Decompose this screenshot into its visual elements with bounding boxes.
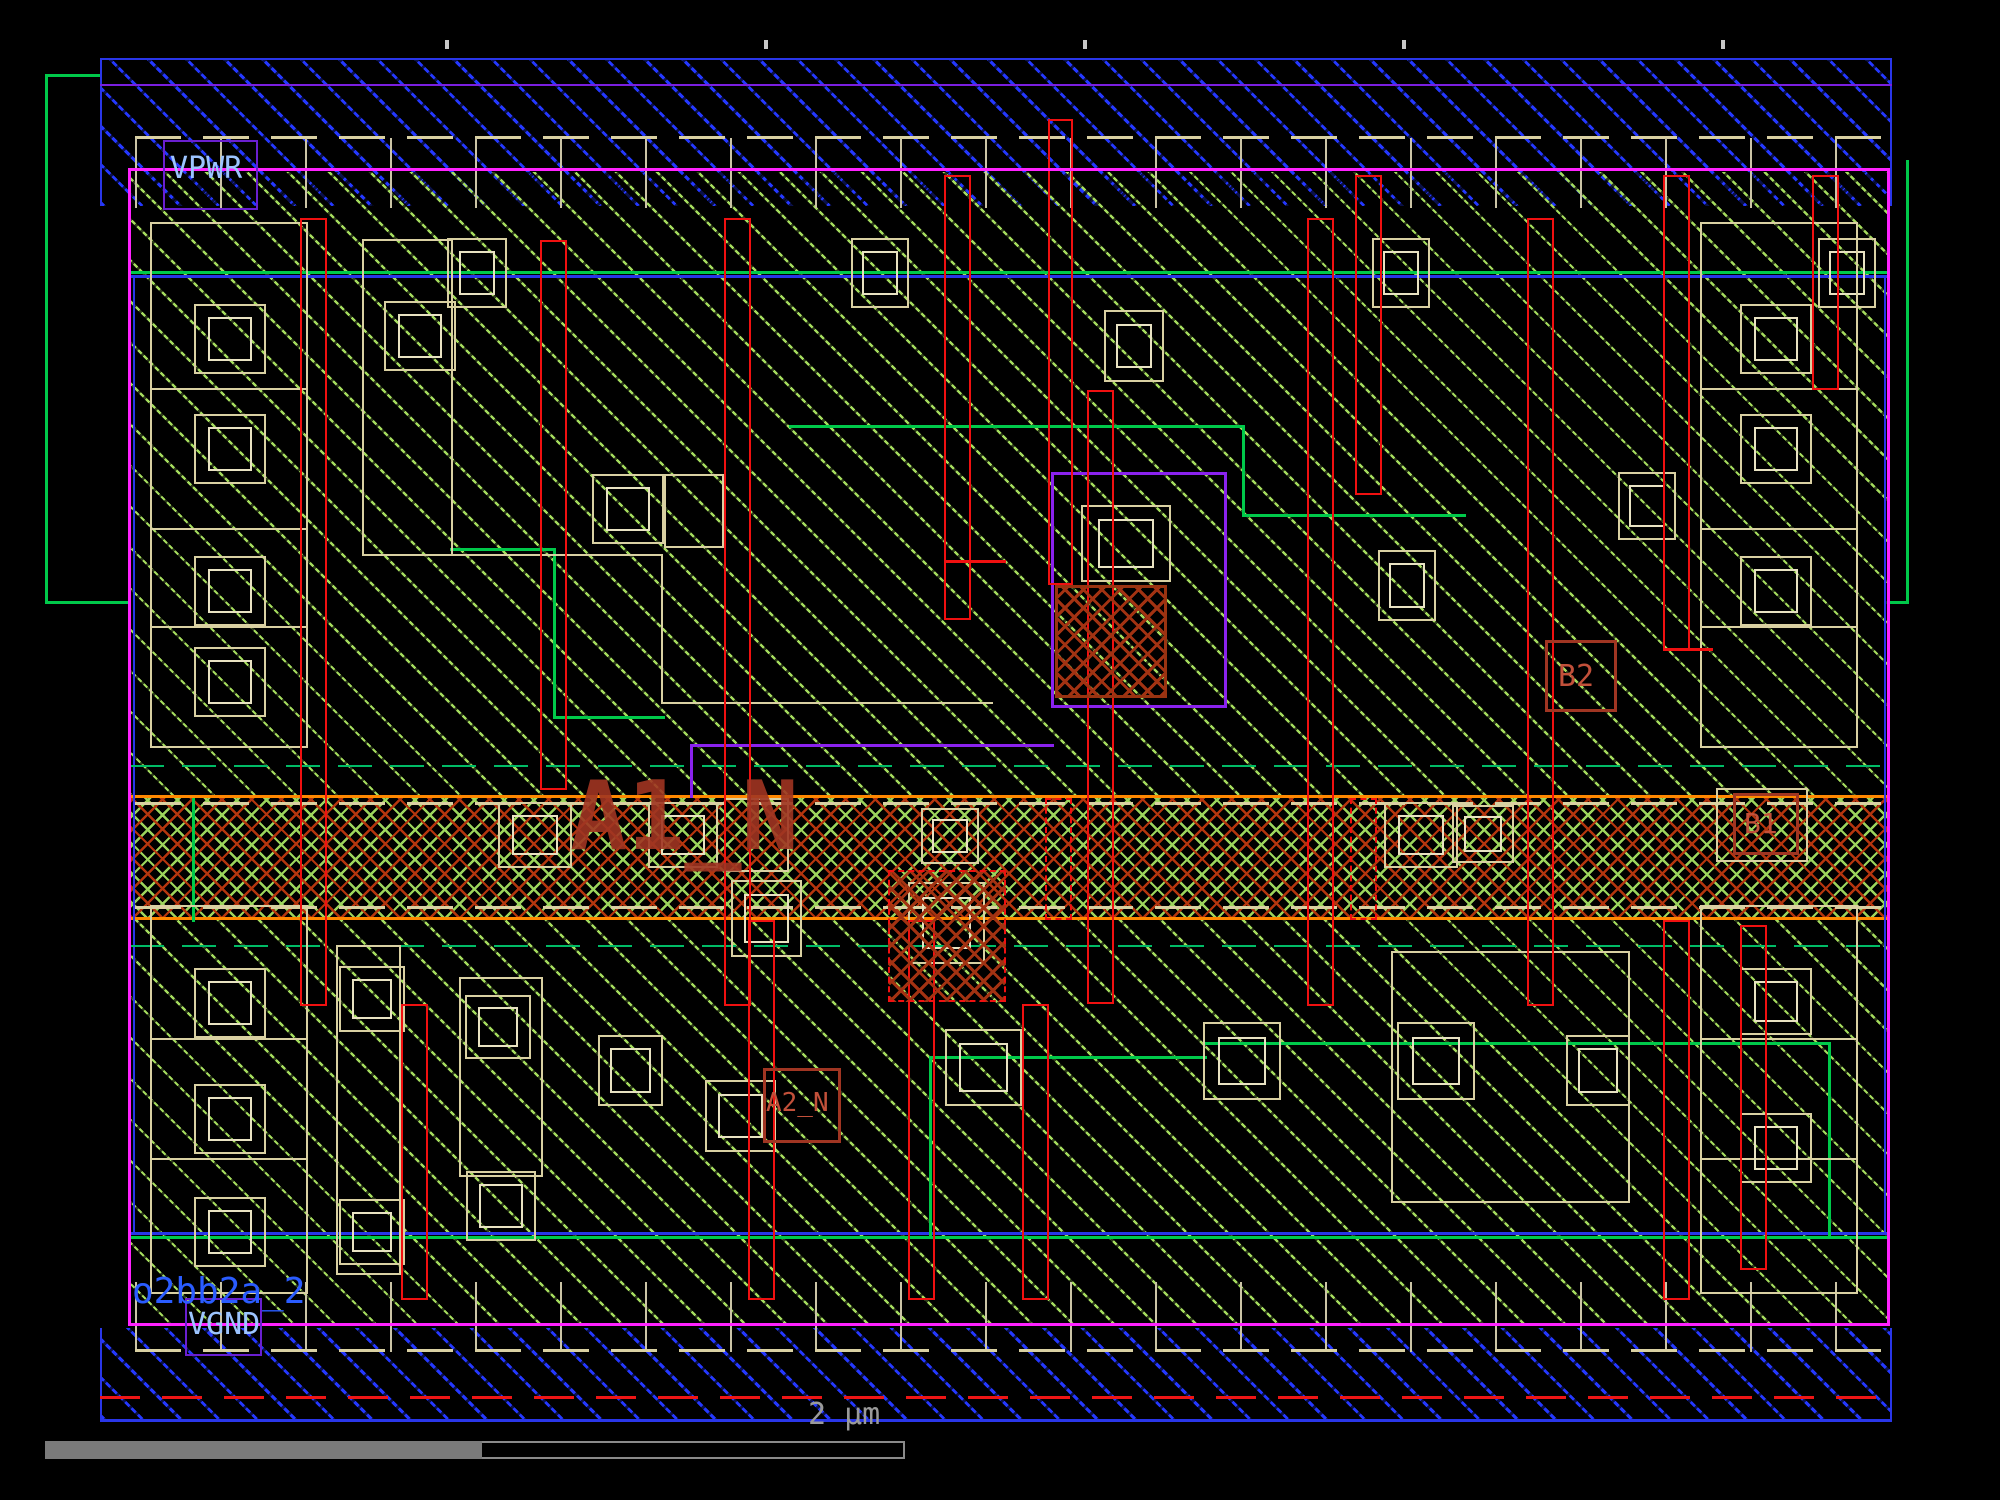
met1-edge-line: [100, 84, 1892, 86]
pin-label-b1: B1: [1744, 810, 1778, 838]
li-dashed-line: [135, 1349, 1888, 1352]
ruler-tick: [1083, 40, 1087, 49]
ruler-tick: [445, 40, 449, 49]
nwell-outline: [45, 74, 103, 77]
pin-label-b2: B2: [1558, 662, 1594, 692]
pin-label-a2n: A2_N: [766, 1090, 829, 1116]
layout-canvas[interactable]: VPWR VGND o2bb2a_2 A1_N A2_N B2 B1 2 µm: [0, 0, 2000, 1500]
ruler-tick: [1402, 40, 1406, 49]
cell-name-label: o2bb2a_2: [132, 1274, 305, 1310]
scale-label: 2 µm: [808, 1400, 880, 1430]
scale-bar-fill: [45, 1441, 482, 1459]
pin-label-a1n: A1_N: [570, 770, 799, 865]
nwell-outline: [45, 74, 48, 604]
ruler-tick: [1721, 40, 1725, 49]
ruler-tick: [764, 40, 768, 49]
vgnd-label: VGND: [188, 1310, 260, 1340]
vpwr-label: VPWR: [170, 154, 242, 184]
poly-dashed-line: [100, 1396, 1892, 1399]
nwell-outline: [45, 601, 131, 604]
nwell-outline: [1906, 160, 1909, 604]
cell-boundary: [128, 168, 1890, 1326]
